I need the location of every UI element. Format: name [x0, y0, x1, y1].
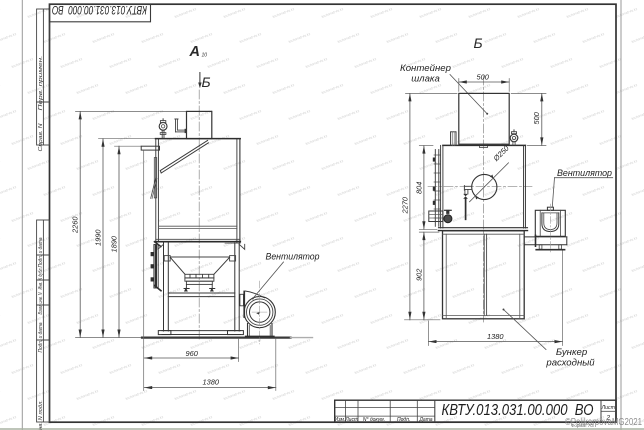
- svg-text:techsnab-kv.kz: techsnab-kv.kz: [60, 134, 83, 146]
- svg-text:techsnab-kv.kz: techsnab-kv.kz: [305, 287, 328, 299]
- svg-text:techsnab-kv.kz: techsnab-kv.kz: [550, 57, 573, 69]
- svg-text:techsnab-kv.kz: techsnab-kv.kz: [337, 109, 360, 121]
- svg-text:techsnab-kv.kz: techsnab-kv.kz: [517, 7, 540, 19]
- svg-text:techsnab-kv.kz: techsnab-kv.kz: [43, 32, 66, 44]
- svg-text:techsnab-kv.kz: techsnab-kv.kz: [207, 363, 230, 375]
- svg-text:techsnab-kv.kz: techsnab-kv.kz: [239, 261, 262, 273]
- svg-text:techsnab-kv.kz: techsnab-kv.kz: [517, 159, 540, 171]
- svg-text:Подп. и дата: Подп. и дата: [38, 322, 44, 352]
- svg-text:techsnab-kv.kz: techsnab-kv.kz: [76, 313, 99, 325]
- svg-text:techsnab-kv.kz: techsnab-kv.kz: [354, 134, 377, 146]
- svg-text:techsnab-kv.kz: techsnab-kv.kz: [174, 389, 197, 401]
- svg-text:techsnab-kv.kz: techsnab-kv.kz: [125, 389, 148, 401]
- svg-text:techsnab-kv.kz: techsnab-kv.kz: [76, 83, 99, 95]
- svg-text:techsnab-kv.kz: techsnab-kv.kz: [337, 261, 360, 273]
- svg-text:techsnab-kv.kz: techsnab-kv.kz: [207, 211, 230, 223]
- svg-text:techsnab-kv.kz: techsnab-kv.kz: [0, 338, 17, 350]
- svg-text:techsnab-kv.kz: techsnab-kv.kz: [354, 287, 377, 299]
- svg-text:techsnab-kv.kz: techsnab-kv.kz: [272, 83, 295, 95]
- svg-text:10: 10: [202, 53, 208, 59]
- svg-text:techsnab-kv.kz: techsnab-kv.kz: [533, 185, 556, 197]
- svg-text:techsnab-kv.kz: techsnab-kv.kz: [305, 211, 328, 223]
- svg-text:techsnab-kv.kz: techsnab-kv.kz: [435, 338, 458, 350]
- svg-text:techsnab-kv.kz: techsnab-kv.kz: [566, 83, 589, 95]
- svg-text:Ø250: Ø250: [491, 143, 511, 163]
- svg-text:techsnab-kv.kz: techsnab-kv.kz: [305, 134, 328, 146]
- svg-text:500: 500: [532, 111, 541, 124]
- svg-text:Подп. и дата: Подп. и дата: [38, 237, 44, 267]
- svg-text:techsnab-kv.kz: techsnab-kv.kz: [386, 109, 409, 121]
- svg-text:techsnab-kv.kz: techsnab-kv.kz: [354, 211, 377, 223]
- svg-text:Взам. инв. N: Взам. инв. N: [38, 292, 44, 314]
- svg-text:techsnab-kv.kz: techsnab-kv.kz: [452, 287, 475, 299]
- svg-text:techsnab-kv.kz: techsnab-kv.kz: [60, 57, 83, 69]
- svg-text:techsnab-kv.kz: techsnab-kv.kz: [599, 57, 622, 69]
- svg-text:techsnab-kv.kz: techsnab-kv.kz: [550, 134, 573, 146]
- svg-text:techsnab-kv.kz: techsnab-kv.kz: [125, 236, 148, 248]
- svg-text:Вентилятор: Вентилятор: [557, 168, 613, 179]
- svg-text:techsnab-kv.kz: techsnab-kv.kz: [599, 287, 622, 299]
- svg-text:techsnab-kv.kz: techsnab-kv.kz: [631, 185, 644, 197]
- svg-text:Изм.: Изм.: [335, 417, 346, 423]
- svg-text:techsnab-kv.kz: techsnab-kv.kz: [468, 159, 491, 171]
- svg-text:techsnab-kv.kz: techsnab-kv.kz: [288, 32, 311, 44]
- svg-text:techsnab-kv.kz: techsnab-kv.kz: [109, 287, 132, 299]
- svg-text:1990: 1990: [93, 229, 102, 246]
- svg-text:techsnab-kv.kz: techsnab-kv.kz: [386, 261, 409, 273]
- svg-text:techsnab-kv.kz: techsnab-kv.kz: [158, 57, 181, 69]
- svg-text:Бункер: Бункер: [556, 347, 588, 358]
- svg-text:techsnab-kv.kz: techsnab-kv.kz: [419, 7, 442, 19]
- svg-text:techsnab-kv.kz: techsnab-kv.kz: [452, 57, 475, 69]
- svg-text:techsnab-kv.kz: techsnab-kv.kz: [0, 83, 1, 95]
- svg-text:techsnab-kv.kz: techsnab-kv.kz: [190, 32, 213, 44]
- svg-text:techsnab-kv.kz: techsnab-kv.kz: [92, 32, 115, 44]
- svg-text:1380: 1380: [487, 332, 504, 341]
- svg-text:techsnab-kv.kz: techsnab-kv.kz: [517, 236, 540, 248]
- svg-text:techsnab-kv.kz: techsnab-kv.kz: [76, 389, 99, 401]
- svg-text:techsnab-kv.kz: techsnab-kv.kz: [615, 389, 638, 401]
- svg-text:techsnab-kv.kz: techsnab-kv.kz: [141, 109, 164, 121]
- svg-text:techsnab-kv.kz: techsnab-kv.kz: [190, 185, 213, 197]
- svg-text:techsnab-kv.kz: techsnab-kv.kz: [354, 363, 377, 375]
- svg-text:techsnab-kv.kz: techsnab-kv.kz: [158, 134, 181, 146]
- svg-text:techsnab-kv.kz: techsnab-kv.kz: [125, 159, 148, 171]
- svg-text:techsnab-kv.kz: techsnab-kv.kz: [566, 236, 589, 248]
- svg-text:techsnab-kv.kz: techsnab-kv.kz: [501, 57, 524, 69]
- svg-text:techsnab-kv.kz: techsnab-kv.kz: [419, 313, 442, 325]
- svg-text:Б: Б: [202, 74, 211, 90]
- svg-text:1380: 1380: [203, 378, 220, 387]
- svg-text:techsnab-kv.kz: techsnab-kv.kz: [517, 389, 540, 401]
- svg-text:techsnab-kv.kz: techsnab-kv.kz: [76, 159, 99, 171]
- svg-text:techsnab-kv.kz: techsnab-kv.kz: [92, 185, 115, 197]
- svg-text:techsnab-kv.kz: techsnab-kv.kz: [321, 389, 344, 401]
- svg-text:techsnab-kv.kz: techsnab-kv.kz: [615, 7, 638, 19]
- svg-text:techsnab-kv.kz: techsnab-kv.kz: [109, 211, 132, 223]
- svg-text:techsnab-kv.kz: techsnab-kv.kz: [582, 109, 605, 121]
- svg-text:Справ. N: Справ. N: [38, 123, 44, 152]
- svg-text:techsnab-kv.kz: techsnab-kv.kz: [92, 338, 115, 350]
- svg-text:techsnab-kv.kz: techsnab-kv.kz: [370, 7, 393, 19]
- svg-text:techsnab-kv.kz: techsnab-kv.kz: [468, 7, 491, 19]
- svg-text:techsnab-kv.kz: techsnab-kv.kz: [223, 7, 246, 19]
- svg-text:techsnab-kv.kz: techsnab-kv.kz: [615, 159, 638, 171]
- svg-text:techsnab-kv.kz: techsnab-kv.kz: [452, 211, 475, 223]
- svg-text:techsnab-kv.kz: techsnab-kv.kz: [615, 236, 638, 248]
- svg-text:techsnab-kv.kz: techsnab-kv.kz: [256, 211, 279, 223]
- svg-text:techsnab-kv.kz: techsnab-kv.kz: [403, 287, 426, 299]
- svg-text:Подп.: Подп.: [397, 417, 410, 423]
- svg-text:techsnab-kv.kz: techsnab-kv.kz: [386, 185, 409, 197]
- svg-text:500: 500: [477, 73, 490, 82]
- svg-text:techsnab-kv.kz: techsnab-kv.kz: [582, 261, 605, 273]
- svg-text:techsnab-kv.kz: techsnab-kv.kz: [0, 109, 17, 121]
- svg-text:techsnab-kv.kz: techsnab-kv.kz: [223, 83, 246, 95]
- svg-text:techsnab-kv.kz: techsnab-kv.kz: [419, 236, 442, 248]
- svg-text:techsnab-kv.kz: techsnab-kv.kz: [337, 185, 360, 197]
- svg-text:Перв. примен.: Перв. примен.: [38, 56, 44, 111]
- svg-text:techsnab-kv.kz: techsnab-kv.kz: [566, 313, 589, 325]
- svg-text:techsnab-kv.kz: techsnab-kv.kz: [272, 389, 295, 401]
- svg-text:techsnab-kv.kz: techsnab-kv.kz: [370, 159, 393, 171]
- svg-text:techsnab-kv.kz: techsnab-kv.kz: [158, 211, 181, 223]
- svg-text:techsnab-kv.kz: techsnab-kv.kz: [256, 134, 279, 146]
- svg-text:techsnab-kv.kz: techsnab-kv.kz: [305, 57, 328, 69]
- svg-text:techsnab-kv.kz: techsnab-kv.kz: [239, 415, 262, 427]
- svg-text:techsnab-kv.kz: techsnab-kv.kz: [321, 7, 344, 19]
- svg-text:902: 902: [414, 269, 423, 281]
- svg-text:techsnab-kv.kz: techsnab-kv.kz: [0, 389, 1, 401]
- svg-text:techsnab-kv.kz: techsnab-kv.kz: [125, 313, 148, 325]
- svg-text:techsnab-kv.kz: techsnab-kv.kz: [223, 159, 246, 171]
- svg-text:techsnab-kv.kz: techsnab-kv.kz: [43, 185, 66, 197]
- svg-text:techsnab-kv.kz: techsnab-kv.kz: [207, 134, 230, 146]
- svg-text:techsnab-kv.kz: techsnab-kv.kz: [321, 313, 344, 325]
- svg-text:расходный: расходный: [545, 358, 595, 369]
- svg-text:techsnab-kv.kz: techsnab-kv.kz: [288, 109, 311, 121]
- svg-text:techsnab-kv.kz: techsnab-kv.kz: [501, 363, 524, 375]
- svg-text:techsnab-kv.kz: techsnab-kv.kz: [337, 338, 360, 350]
- svg-text:techsnab-kv.kz: techsnab-kv.kz: [190, 261, 213, 273]
- svg-text:techsnab-kv.kz: techsnab-kv.kz: [354, 57, 377, 69]
- svg-text:techsnab-kv.kz: techsnab-kv.kz: [92, 109, 115, 121]
- svg-text:techsnab-kv.kz: techsnab-kv.kz: [631, 32, 644, 44]
- svg-text:N° докум.: N° докум.: [363, 417, 385, 423]
- svg-text:techsnab-kv.kz: techsnab-kv.kz: [533, 32, 556, 44]
- svg-text:techsnab-kv.kz: techsnab-kv.kz: [0, 7, 1, 19]
- svg-text:techsnab-kv.kz: techsnab-kv.kz: [239, 109, 262, 121]
- svg-text:techsnab-kv.kz: techsnab-kv.kz: [370, 389, 393, 401]
- svg-text:techsnab-kv.kz: techsnab-kv.kz: [190, 415, 213, 427]
- svg-text:techsnab-kv.kz: techsnab-kv.kz: [239, 338, 262, 350]
- svg-text:Б: Б: [474, 35, 483, 51]
- svg-text:techsnab-kv.kz: techsnab-kv.kz: [190, 109, 213, 121]
- svg-text:Формат А3: Формат А3: [571, 423, 594, 428]
- svg-text:techsnab-kv.kz: techsnab-kv.kz: [631, 109, 644, 121]
- svg-text:techsnab-kv.kz: techsnab-kv.kz: [256, 57, 279, 69]
- svg-text:techsnab-kv.kz: techsnab-kv.kz: [239, 185, 262, 197]
- svg-text:techsnab-kv.kz: techsnab-kv.kz: [305, 363, 328, 375]
- svg-text:techsnab-kv.kz: techsnab-kv.kz: [174, 159, 197, 171]
- svg-text:techsnab-kv.kz: techsnab-kv.kz: [174, 313, 197, 325]
- svg-text:techsnab-kv.kz: techsnab-kv.kz: [43, 415, 66, 427]
- svg-text:techsnab-kv.kz: techsnab-kv.kz: [550, 287, 573, 299]
- svg-text:techsnab-kv.kz: techsnab-kv.kz: [207, 57, 230, 69]
- svg-text:960: 960: [186, 349, 199, 358]
- svg-text:techsnab-kv.kz: techsnab-kv.kz: [109, 134, 132, 146]
- svg-text:Лист: Лист: [344, 417, 358, 423]
- svg-text:techsnab-kv.kz: techsnab-kv.kz: [288, 338, 311, 350]
- svg-text:2260: 2260: [71, 216, 80, 234]
- svg-text:techsnab-kv.kz: techsnab-kv.kz: [0, 415, 17, 427]
- svg-text:Лист: Лист: [601, 405, 616, 411]
- svg-text:techsnab-kv.kz: techsnab-kv.kz: [239, 32, 262, 44]
- svg-text:techsnab-kv.kz: techsnab-kv.kz: [109, 57, 132, 69]
- svg-text:Инв. N подл.: Инв. N подл.: [38, 400, 44, 430]
- svg-text:techsnab-kv.kz: techsnab-kv.kz: [321, 236, 344, 248]
- svg-text:techsnab-kv.kz: techsnab-kv.kz: [582, 185, 605, 197]
- svg-text:1890: 1890: [109, 235, 118, 252]
- svg-text:techsnab-kv.kz: techsnab-kv.kz: [288, 415, 311, 427]
- svg-text:techsnab-kv.kz: techsnab-kv.kz: [27, 159, 50, 171]
- svg-text:techsnab-kv.kz: techsnab-kv.kz: [272, 7, 295, 19]
- svg-text:techsnab-kv.kz: techsnab-kv.kz: [288, 261, 311, 273]
- svg-text:techsnab-kv.kz: techsnab-kv.kz: [0, 313, 1, 325]
- svg-text:КВТУ.013.031.00.000 ВО: КВТУ.013.031.00.000 ВО: [52, 3, 147, 15]
- svg-text:techsnab-kv.kz: techsnab-kv.kz: [337, 32, 360, 44]
- svg-text:techsnab-kv.kz: techsnab-kv.kz: [615, 83, 638, 95]
- svg-text:techsnab-kv.kz: techsnab-kv.kz: [566, 7, 589, 19]
- svg-text:techsnab-kv.kz: techsnab-kv.kz: [501, 211, 524, 223]
- svg-text:techsnab-kv.kz: techsnab-kv.kz: [452, 363, 475, 375]
- svg-text:techsnab-kv.kz: techsnab-kv.kz: [141, 338, 164, 350]
- svg-text:techsnab-kv.kz: techsnab-kv.kz: [566, 389, 589, 401]
- svg-text:Дата: Дата: [418, 417, 432, 423]
- svg-text:techsnab-kv.kz: techsnab-kv.kz: [419, 389, 442, 401]
- svg-text:techsnab-kv.kz: techsnab-kv.kz: [615, 313, 638, 325]
- svg-text:techsnab-kv.kz: techsnab-kv.kz: [435, 109, 458, 121]
- svg-text:techsnab-kv.kz: techsnab-kv.kz: [321, 83, 344, 95]
- svg-text:Контейнер: Контейнер: [400, 63, 452, 74]
- svg-text:techsnab-kv.kz: techsnab-kv.kz: [631, 261, 644, 273]
- svg-text:techsnab-kv.kz: techsnab-kv.kz: [0, 32, 17, 44]
- svg-text:Вентилятор: Вентилятор: [266, 252, 321, 263]
- svg-text:techsnab-kv.kz: techsnab-kv.kz: [631, 338, 644, 350]
- svg-text:techsnab-kv.kz: techsnab-kv.kz: [370, 236, 393, 248]
- svg-text:Инв. N дубл.: Инв. N дубл.: [38, 268, 44, 290]
- svg-text:techsnab-kv.kz: techsnab-kv.kz: [484, 261, 507, 273]
- svg-text:techsnab-kv.kz: techsnab-kv.kz: [141, 32, 164, 44]
- svg-text:techsnab-kv.kz: techsnab-kv.kz: [223, 389, 246, 401]
- svg-text:techsnab-kv.kz: techsnab-kv.kz: [0, 159, 1, 171]
- svg-text:techsnab-kv.kz: techsnab-kv.kz: [288, 185, 311, 197]
- svg-text:techsnab-kv.kz: techsnab-kv.kz: [272, 236, 295, 248]
- svg-text:шлака: шлака: [411, 74, 440, 85]
- svg-text:techsnab-kv.kz: techsnab-kv.kz: [92, 261, 115, 273]
- svg-text:804: 804: [414, 182, 423, 194]
- svg-text:techsnab-kv.kz: techsnab-kv.kz: [0, 185, 17, 197]
- svg-text:techsnab-kv.kz: techsnab-kv.kz: [386, 32, 409, 44]
- svg-text:techsnab-kv.kz: techsnab-kv.kz: [0, 261, 17, 273]
- svg-text:techsnab-kv.kz: techsnab-kv.kz: [92, 415, 115, 427]
- svg-text:techsnab-kv.kz: techsnab-kv.kz: [321, 159, 344, 171]
- svg-text:techsnab-kv.kz: techsnab-kv.kz: [582, 32, 605, 44]
- svg-text:techsnab-kv.kz: techsnab-kv.kz: [599, 363, 622, 375]
- svg-text:techsnab-kv.kz: techsnab-kv.kz: [174, 7, 197, 19]
- svg-text:techsnab-kv.kz: techsnab-kv.kz: [370, 313, 393, 325]
- svg-text:techsnab-kv.kz: techsnab-kv.kz: [125, 83, 148, 95]
- svg-text:techsnab-kv.kz: techsnab-kv.kz: [0, 236, 1, 248]
- svg-text:techsnab-kv.kz: techsnab-kv.kz: [599, 134, 622, 146]
- svg-text:techsnab-kv.kz: techsnab-kv.kz: [484, 109, 507, 121]
- svg-text:techsnab-kv.kz: techsnab-kv.kz: [484, 32, 507, 44]
- svg-text:techsnab-kv.kz: techsnab-kv.kz: [141, 415, 164, 427]
- svg-text:techsnab-kv.kz: techsnab-kv.kz: [158, 363, 181, 375]
- svg-text:techsnab-kv.kz: techsnab-kv.kz: [43, 109, 66, 121]
- svg-text:techsnab-kv.kz: techsnab-kv.kz: [272, 159, 295, 171]
- svg-text:А: А: [189, 44, 200, 60]
- svg-text:techsnab-kv.kz: techsnab-kv.kz: [174, 83, 197, 95]
- svg-text:techsnab-kv.kz: techsnab-kv.kz: [386, 338, 409, 350]
- svg-text:techsnab-kv.kz: techsnab-kv.kz: [435, 32, 458, 44]
- svg-text:techsnab-kv.kz: techsnab-kv.kz: [468, 236, 491, 248]
- svg-text:techsnab-kv.kz: techsnab-kv.kz: [60, 363, 83, 375]
- svg-text:techsnab-kv.kz: techsnab-kv.kz: [533, 261, 556, 273]
- svg-text:techsnab-kv.kz: techsnab-kv.kz: [60, 287, 83, 299]
- svg-text:techsnab-kv.kz: techsnab-kv.kz: [468, 389, 491, 401]
- svg-text:techsnab-kv.kz: techsnab-kv.kz: [501, 287, 524, 299]
- svg-text:2270: 2270: [400, 196, 409, 214]
- svg-text:techsnab-kv.kz: techsnab-kv.kz: [599, 211, 622, 223]
- svg-text:techsnab-kv.kz: techsnab-kv.kz: [27, 389, 50, 401]
- svg-text:techsnab-kv.kz: techsnab-kv.kz: [403, 134, 426, 146]
- svg-text:techsnab-kv.kz: techsnab-kv.kz: [403, 363, 426, 375]
- svg-text:techsnab-kv.kz: techsnab-kv.kz: [370, 83, 393, 95]
- svg-text:techsnab-kv.kz: techsnab-kv.kz: [43, 261, 66, 273]
- svg-text:techsnab-kv.kz: techsnab-kv.kz: [109, 363, 132, 375]
- svg-text:techsnab-kv.kz: techsnab-kv.kz: [484, 185, 507, 197]
